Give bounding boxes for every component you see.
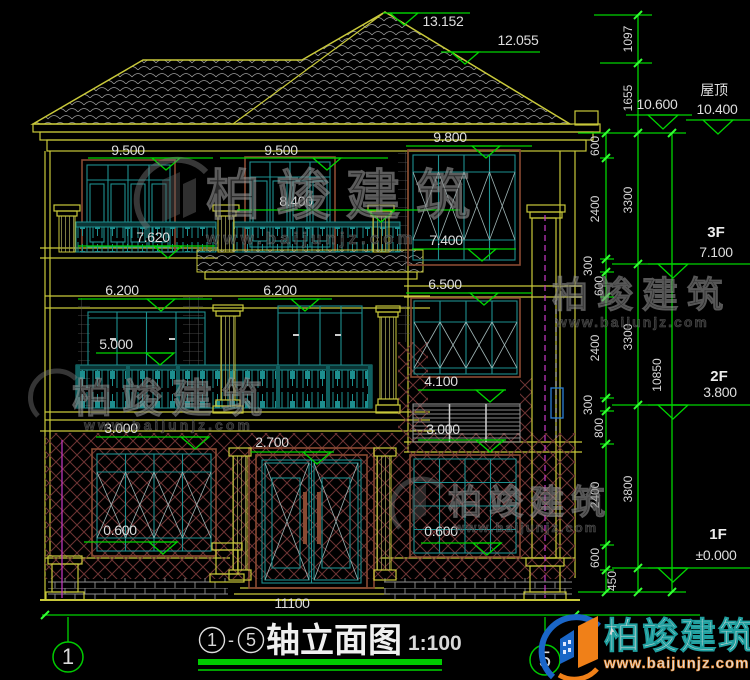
door-handle-right	[317, 492, 321, 544]
svg-text:2F: 2F	[710, 368, 728, 385]
level-1f: 1F±0.000	[648, 526, 750, 582]
svg-text:1F: 1F	[709, 526, 727, 543]
watermark-right-middle: 柏竣建筑 www.baijunjz.com	[552, 274, 732, 330]
svg-text:www.baijunjz.com: www.baijunjz.com	[453, 520, 598, 535]
window-2f-middle	[278, 306, 362, 366]
peak-elevation: 13.152	[422, 13, 464, 29]
brick-base	[48, 578, 572, 600]
mark-9500-left: 9.500	[111, 142, 145, 158]
brand-name: 柏竣建筑	[604, 615, 750, 656]
watermark-logo-center	[137, 160, 206, 228]
title-axis-start: 1	[207, 630, 217, 650]
dim-300a: 300	[581, 256, 595, 276]
axis-bubble-1: 1	[53, 642, 83, 672]
mark-6200-left: 6.200	[105, 282, 139, 298]
drawing-title: 轴立面图	[266, 622, 402, 660]
svg-text:柏竣建筑: 柏竣建筑	[448, 483, 612, 522]
svg-text:屋顶: 屋顶	[700, 82, 728, 98]
awning-roof	[197, 250, 423, 279]
cad-canvas: 13.152 12.055 9.500 9.500 8.400 9.800 7.…	[0, 0, 750, 680]
dim-450: 450	[605, 571, 619, 591]
title-axis-end: 5	[246, 630, 256, 650]
watermark-left-middle: 柏竣建筑 www.baijunjz.com	[30, 371, 272, 433]
dim-1097: 1097	[621, 25, 635, 52]
meter-box	[551, 388, 563, 418]
svg-text:www.baijunjz.com: www.baijunjz.com	[83, 417, 253, 433]
title-underline-thick	[198, 659, 442, 665]
mark-4100: 4.100	[424, 373, 458, 389]
elevation-drawing: 13.152 12.055 9.500 9.500 8.400 9.800 7.…	[0, 0, 750, 680]
dim-1655: 1655	[621, 84, 635, 111]
dim-2400b: 2400	[588, 334, 602, 361]
roof	[33, 12, 570, 124]
mark-9800: 9.800	[433, 129, 467, 145]
svg-text:10.400: 10.400	[696, 101, 738, 117]
dim-3300a: 3300	[621, 186, 635, 213]
svg-text:柏竣建筑: 柏竣建筑	[72, 377, 272, 421]
dim-600a: 600	[588, 136, 602, 156]
svg-text:柏竣建筑: 柏竣建筑	[552, 274, 732, 315]
mark-9500-mid: 9.500	[264, 142, 298, 158]
mark-0600-left: 0.600	[103, 522, 137, 538]
svg-text:10.600: 10.600	[636, 96, 678, 112]
mark-7620: 7.620	[136, 229, 170, 245]
dim-600c: 600	[588, 548, 602, 568]
mark-5000: 5.000	[99, 336, 133, 352]
mark-6200-mid: 6.200	[263, 282, 297, 298]
level-roof: 屋顶10.400	[686, 82, 750, 134]
mark-6500: 6.500	[428, 276, 462, 292]
right-parapet	[575, 111, 598, 125]
mark-2700: 2.700	[255, 434, 289, 450]
dim-3800: 3800	[621, 475, 635, 502]
mark-3000-right: 3.000	[426, 421, 460, 437]
svg-text:7.100: 7.100	[699, 244, 733, 260]
pilaster-2f-right	[376, 306, 400, 413]
svg-text:3.800: 3.800	[703, 384, 737, 400]
level-eave: 10.600	[626, 96, 692, 129]
dim-11100: 11100	[274, 595, 310, 611]
title-dash: -	[228, 630, 234, 650]
title-underline-thin	[198, 669, 442, 671]
svg-text:1: 1	[62, 644, 74, 669]
mark-7400: 7.400	[429, 232, 463, 248]
watermark-url: www.baijunjz.com	[205, 229, 417, 248]
dim-2400a: 2400	[588, 195, 602, 222]
dim-800: 800	[592, 418, 606, 438]
dim-300b: 300	[581, 395, 595, 415]
svg-text:www.baijunjz.com: www.baijunjz.com	[555, 314, 709, 330]
drawing-scale: 1:100	[408, 632, 462, 655]
level-3f: 3F7.100	[648, 224, 750, 278]
svg-text:3F: 3F	[707, 224, 725, 241]
svg-text:±0.000: ±0.000	[696, 547, 737, 563]
brand-url: www.baijunjz.com	[603, 655, 749, 672]
upper-roof-elevation: 12.055	[497, 32, 539, 48]
title-block: 1 - 5 轴立面图 1:100	[198, 622, 462, 671]
entry-steps	[228, 588, 396, 600]
dim-total-10850: 10850	[650, 358, 664, 392]
door-handle-left	[303, 492, 307, 544]
watermark-bottom-right: 柏竣建筑 www.baijunjz.com	[542, 615, 750, 679]
watermark-brand: 柏竣建筑	[206, 166, 486, 226]
